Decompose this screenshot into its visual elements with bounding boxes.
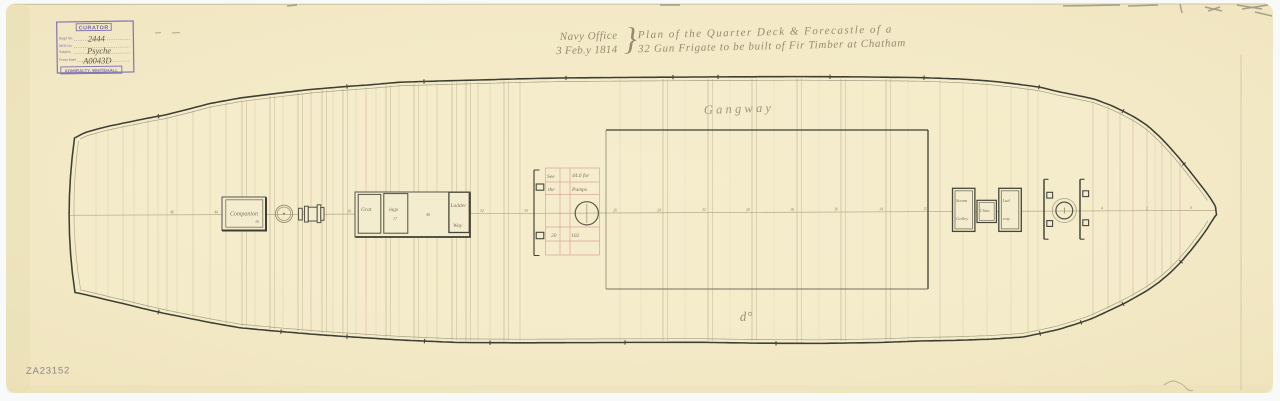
svg-text:Companion: Companion bbox=[230, 212, 258, 218]
svg-text:}: } bbox=[623, 20, 637, 56]
svg-text:20: 20 bbox=[746, 208, 750, 212]
svg-text:the: the bbox=[548, 187, 555, 193]
svg-text:18: 18 bbox=[790, 208, 794, 212]
svg-text:Subject:: Subject: bbox=[59, 50, 71, 54]
svg-text:26: 26 bbox=[613, 209, 617, 213]
svg-text:0: 0 bbox=[1190, 206, 1192, 210]
svg-text:38: 38 bbox=[347, 210, 351, 214]
svg-text:44.6 for: 44.6 for bbox=[572, 172, 590, 179]
svg-text:Chim.: Chim. bbox=[980, 208, 991, 213]
svg-text:Steam: Steam bbox=[956, 198, 968, 203]
svg-text:14: 14 bbox=[879, 207, 883, 211]
svg-text:ings: ings bbox=[389, 207, 398, 213]
svg-text:Way: Way bbox=[453, 223, 463, 229]
svg-text:Press Mark: Press Mark bbox=[59, 58, 77, 62]
svg-text:20: 20 bbox=[551, 233, 557, 239]
svg-text:Psyche: Psyche bbox=[86, 45, 111, 55]
svg-text:30: 30 bbox=[524, 209, 528, 213]
svg-text:ADMIRALTY, WHITEHALL: ADMIRALTY, WHITEHALL bbox=[65, 68, 119, 74]
svg-text:22: 22 bbox=[702, 208, 706, 212]
svg-text:NEG No.: NEG No. bbox=[59, 44, 73, 48]
svg-text:102: 102 bbox=[571, 233, 580, 239]
svg-text:See: See bbox=[547, 174, 555, 180]
svg-text:Ladder: Ladder bbox=[450, 203, 468, 209]
svg-text:Galley: Galley bbox=[956, 216, 969, 221]
svg-text:Lad: Lad bbox=[1002, 198, 1011, 203]
svg-text:d°: d° bbox=[739, 308, 753, 324]
svg-text:Grat: Grat bbox=[361, 207, 372, 213]
svg-text:16: 16 bbox=[255, 219, 259, 224]
svg-text:ZA23152: ZA23152 bbox=[26, 365, 70, 377]
svg-text:way: way bbox=[1003, 216, 1011, 221]
svg-text:Gangway: Gangway bbox=[704, 101, 775, 117]
svg-text:Regd No.: Regd No. bbox=[59, 36, 73, 40]
svg-text:12: 12 bbox=[923, 207, 927, 211]
svg-text:Navy Office: Navy Office bbox=[559, 30, 618, 43]
svg-text:16: 16 bbox=[834, 208, 838, 212]
svg-text:40: 40 bbox=[426, 212, 430, 217]
svg-text:24: 24 bbox=[657, 208, 661, 212]
svg-text:2444: 2444 bbox=[88, 33, 106, 43]
svg-text:32: 32 bbox=[480, 209, 484, 213]
svg-text:CURATOR: CURATOR bbox=[79, 25, 109, 31]
svg-text:44: 44 bbox=[214, 210, 218, 214]
svg-text:3 Feb.y 1814: 3 Feb.y 1814 bbox=[555, 44, 618, 57]
svg-text:4: 4 bbox=[1101, 207, 1103, 211]
svg-text:Pumps: Pumps bbox=[571, 187, 587, 193]
svg-text:A0043D: A0043D bbox=[82, 55, 112, 65]
svg-text:2: 2 bbox=[1146, 206, 1148, 210]
svg-text:46: 46 bbox=[170, 211, 174, 215]
